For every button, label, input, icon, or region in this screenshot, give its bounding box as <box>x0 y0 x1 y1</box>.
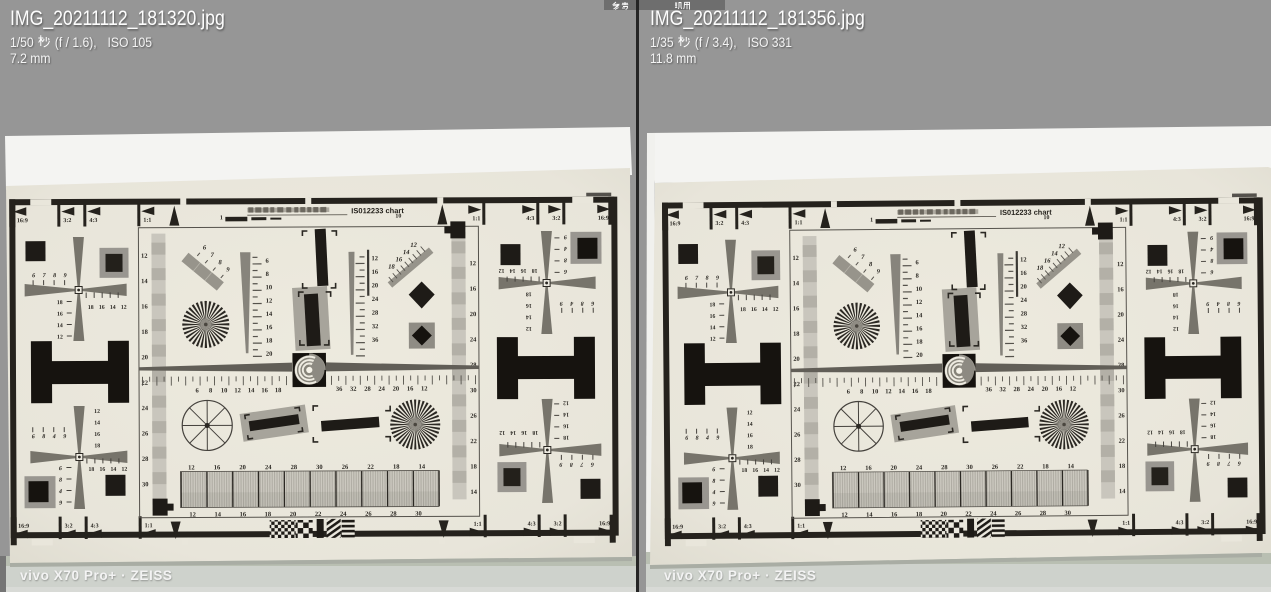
svg-text:12: 12 <box>57 335 63 341</box>
svg-text:14: 14 <box>94 420 100 426</box>
svg-text:16:9: 16:9 <box>18 524 29 530</box>
svg-text:14: 14 <box>110 305 116 311</box>
svg-text:36: 36 <box>336 386 343 393</box>
svg-text:6: 6 <box>59 466 62 472</box>
svg-text:9: 9 <box>59 501 62 507</box>
svg-text:20: 20 <box>141 354 148 361</box>
svg-text:14: 14 <box>248 387 255 394</box>
svg-text:4:3: 4:3 <box>526 216 534 222</box>
svg-text:14: 14 <box>141 278 148 285</box>
svg-text:20: 20 <box>266 351 273 358</box>
svg-text:24: 24 <box>265 464 272 471</box>
svg-text:22: 22 <box>315 511 322 518</box>
svg-text:18: 18 <box>275 387 282 394</box>
svg-text:14: 14 <box>111 467 117 473</box>
svg-text:28: 28 <box>372 310 379 317</box>
svg-text:12: 12 <box>421 385 428 392</box>
svg-text:12: 12 <box>410 242 417 249</box>
svg-text:22: 22 <box>470 438 477 445</box>
svg-text:14: 14 <box>57 323 63 329</box>
svg-text:16:9: 16:9 <box>598 216 609 222</box>
svg-text:24: 24 <box>378 386 385 393</box>
svg-text:20: 20 <box>393 386 400 393</box>
svg-text:8: 8 <box>53 273 56 279</box>
svg-text:20: 20 <box>372 282 379 289</box>
svg-text:16: 16 <box>470 286 477 293</box>
svg-text:12: 12 <box>188 464 195 471</box>
svg-text:32: 32 <box>350 386 357 393</box>
svg-text:4:3: 4:3 <box>91 523 99 529</box>
svg-text:1:1: 1:1 <box>474 522 482 528</box>
svg-text:9: 9 <box>64 273 67 279</box>
svg-text:12: 12 <box>94 409 100 415</box>
svg-text:16: 16 <box>57 312 63 318</box>
svg-text:1:1: 1:1 <box>145 523 153 529</box>
svg-text:24: 24 <box>340 511 347 518</box>
svg-text:18: 18 <box>88 305 94 311</box>
svg-text:18: 18 <box>388 264 395 271</box>
svg-text:24: 24 <box>142 405 149 412</box>
svg-text:20: 20 <box>290 511 297 518</box>
svg-text:16: 16 <box>99 305 105 311</box>
svg-text:14: 14 <box>266 311 273 318</box>
svg-text:28: 28 <box>390 511 397 518</box>
svg-text:16:9: 16:9 <box>17 218 28 224</box>
svg-text:16: 16 <box>407 386 414 393</box>
svg-text:4: 4 <box>52 434 56 440</box>
svg-text:14: 14 <box>471 489 478 496</box>
svg-text:6: 6 <box>32 434 35 440</box>
svg-text:24: 24 <box>372 296 379 303</box>
svg-text:12: 12 <box>266 298 273 305</box>
svg-text:16: 16 <box>396 256 403 263</box>
svg-text:16: 16 <box>94 432 100 438</box>
svg-text:4: 4 <box>58 489 62 495</box>
svg-text:1:1: 1:1 <box>472 216 480 222</box>
svg-text:9: 9 <box>63 434 66 440</box>
svg-text:16:9: 16:9 <box>599 521 610 527</box>
svg-text:10: 10 <box>395 214 401 220</box>
svg-text:28: 28 <box>364 386 371 393</box>
svg-text:16: 16 <box>214 464 221 471</box>
svg-text:4:3: 4:3 <box>528 522 536 528</box>
svg-text:18: 18 <box>57 300 63 306</box>
svg-text:18: 18 <box>89 467 95 473</box>
svg-text:26: 26 <box>142 430 149 437</box>
svg-text:18: 18 <box>266 337 273 344</box>
svg-text:26: 26 <box>470 413 477 420</box>
svg-text:36: 36 <box>372 337 379 344</box>
svg-text:12: 12 <box>234 387 241 394</box>
svg-text:30: 30 <box>470 387 477 394</box>
svg-text:3:2: 3:2 <box>552 216 560 222</box>
svg-text:20: 20 <box>470 311 477 318</box>
svg-text:12: 12 <box>470 260 477 267</box>
svg-text:1: 1 <box>220 215 223 221</box>
svg-text:12: 12 <box>371 255 378 262</box>
svg-text:30: 30 <box>142 481 149 488</box>
svg-text:16: 16 <box>100 467 106 473</box>
svg-text:10: 10 <box>221 387 228 394</box>
svg-text:14: 14 <box>419 463 426 470</box>
svg-text:22: 22 <box>367 464 374 471</box>
svg-text:16: 16 <box>372 269 379 276</box>
svg-text:12: 12 <box>141 253 148 260</box>
svg-text:24: 24 <box>470 336 477 343</box>
svg-text:3:2: 3:2 <box>63 218 71 224</box>
svg-text:18: 18 <box>141 329 148 336</box>
svg-text:26: 26 <box>342 464 349 471</box>
svg-text:12: 12 <box>121 305 127 311</box>
svg-text:6: 6 <box>32 273 35 279</box>
svg-text:30: 30 <box>316 464 323 471</box>
svg-text:30: 30 <box>415 511 422 518</box>
svg-text:18: 18 <box>393 464 400 471</box>
svg-text:28: 28 <box>291 464 298 471</box>
svg-text:1:1: 1:1 <box>143 218 151 224</box>
svg-text:26: 26 <box>365 511 372 518</box>
svg-text:18: 18 <box>470 463 477 470</box>
svg-text:16: 16 <box>240 511 247 518</box>
svg-text:20: 20 <box>239 464 246 471</box>
svg-text:14: 14 <box>214 511 221 518</box>
svg-text:16: 16 <box>141 303 148 310</box>
svg-text:8: 8 <box>59 478 62 484</box>
svg-text:3:2: 3:2 <box>65 524 73 530</box>
svg-text:8: 8 <box>42 434 45 440</box>
svg-text:12: 12 <box>122 467 128 473</box>
svg-text:28: 28 <box>142 456 149 463</box>
svg-text:32: 32 <box>372 323 379 330</box>
svg-text:18: 18 <box>94 443 100 449</box>
svg-text:16: 16 <box>261 387 268 394</box>
svg-text:4:3: 4:3 <box>89 218 97 224</box>
svg-text:14: 14 <box>403 249 410 256</box>
svg-text:18: 18 <box>265 511 272 518</box>
svg-text:16: 16 <box>266 324 273 331</box>
svg-text:3:2: 3:2 <box>554 521 562 527</box>
svg-text:10: 10 <box>266 284 273 291</box>
svg-text:12: 12 <box>189 511 196 518</box>
